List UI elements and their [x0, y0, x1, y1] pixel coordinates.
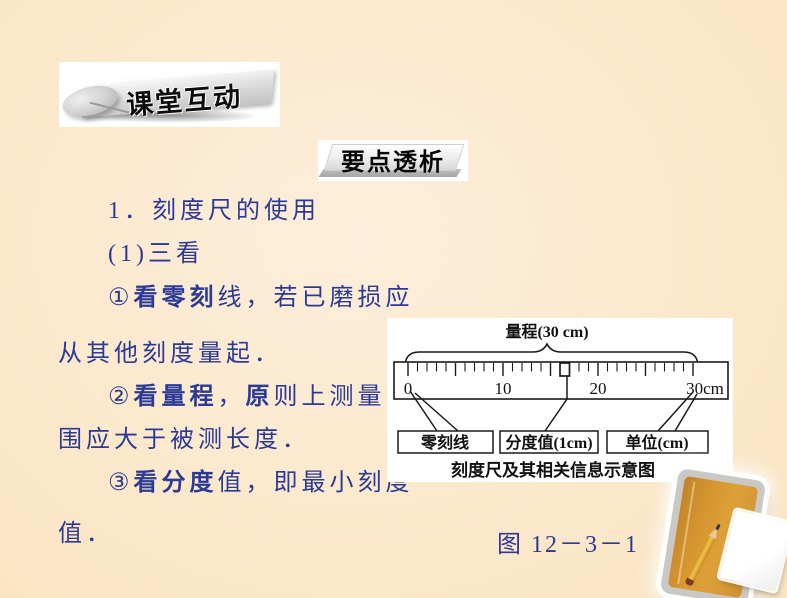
slide: 课堂互动 要点透析 1．刻度尺的使用(1)三看①看零刻线，若已磨损应从其他刻度量… — [0, 0, 787, 598]
text-segment: 围应大于被测长度． — [58, 427, 310, 453]
body-text-line: 值． — [58, 513, 114, 548]
text-segment: ③ — [108, 470, 134, 496]
text-segment: 值． — [58, 521, 114, 547]
division-marker-square — [560, 363, 570, 376]
body-text-line: (1)三看 — [108, 233, 204, 268]
body-text-line: 1．刻度尺的使用 — [108, 190, 320, 225]
key-points-banner: 要点透析 — [318, 140, 468, 181]
svg-text:30cm: 30cm — [686, 379, 724, 398]
classroom-interaction-banner: 课堂互动 — [59, 62, 280, 127]
svg-text:20: 20 — [590, 379, 607, 398]
figure-caption: 刻度尺及其相关信息示意图 — [451, 460, 655, 480]
unit-label: 单位(cm) — [625, 433, 688, 452]
text-segment: ， — [218, 384, 246, 410]
svg-text:10: 10 — [495, 379, 512, 398]
body-text-line: 围应大于被测长度． — [58, 419, 310, 454]
zero-line-label: 零刻线 — [420, 433, 469, 452]
range-label: 量程(30 cm) — [505, 323, 588, 341]
text-segment: 原 — [246, 384, 274, 410]
body-text-line: ①看零刻线，若已磨损应 — [108, 277, 414, 312]
text-segment: 从其他刻度量起． — [58, 341, 282, 367]
text-segment: 看零刻 — [134, 285, 218, 311]
text-segment: 1．刻度尺的使用 — [108, 198, 320, 224]
division-value-label: 分度值(1cm) — [505, 433, 592, 452]
text-segment: 线，若已磨损应 — [218, 285, 414, 311]
text-segment: ② — [108, 384, 134, 410]
body-text-line: 从其他刻度量起． — [58, 333, 282, 368]
body-text-line: ③看分度值，即最小刻度 — [108, 462, 414, 497]
text-segment: 看分度 — [134, 470, 218, 496]
text-segment: 值，即最小刻度 — [218, 470, 414, 496]
key-points-title: 要点透析 — [318, 142, 468, 177]
svg-text:0: 0 — [404, 379, 413, 398]
notebook-graphic — [645, 452, 787, 598]
body-text-line: ②看量程，原则上测量范 — [108, 376, 414, 411]
text-segment: ① — [108, 285, 134, 311]
text-segment: 看量程 — [134, 384, 218, 410]
text-segment: (1)三看 — [108, 241, 204, 267]
figure-number: 图 12－3－1 — [497, 524, 639, 559]
